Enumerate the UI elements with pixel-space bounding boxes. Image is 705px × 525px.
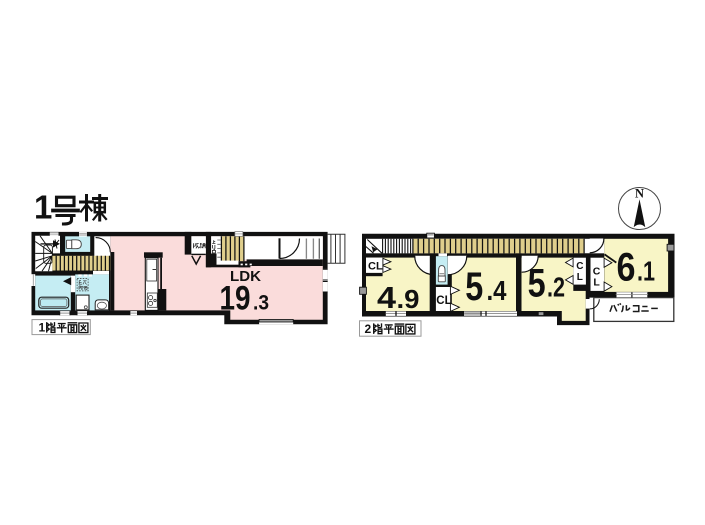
svg-text:19: 19 [220,280,251,318]
svg-text:1: 1 [34,189,52,226]
svg-text:5: 5 [465,265,483,309]
svg-text:CL: CL [436,295,451,307]
svg-text:4: 4 [377,280,397,315]
svg-text:CL: CL [368,261,383,273]
svg-text:.2: .2 [547,272,565,303]
svg-text:.9: .9 [397,284,420,314]
svg-text:5: 5 [528,262,546,306]
svg-text:.4: .4 [487,275,507,306]
svg-text:2: 2 [365,322,372,336]
svg-text:N: N [635,187,644,201]
svg-text:L: L [577,272,583,283]
svg-text:.1: .1 [637,256,655,287]
svg-text:C: C [576,261,583,272]
svg-text:L: L [593,276,600,288]
svg-text:.3: .3 [253,292,269,315]
svg-text:6: 6 [617,246,636,290]
svg-text:1: 1 [39,320,46,334]
